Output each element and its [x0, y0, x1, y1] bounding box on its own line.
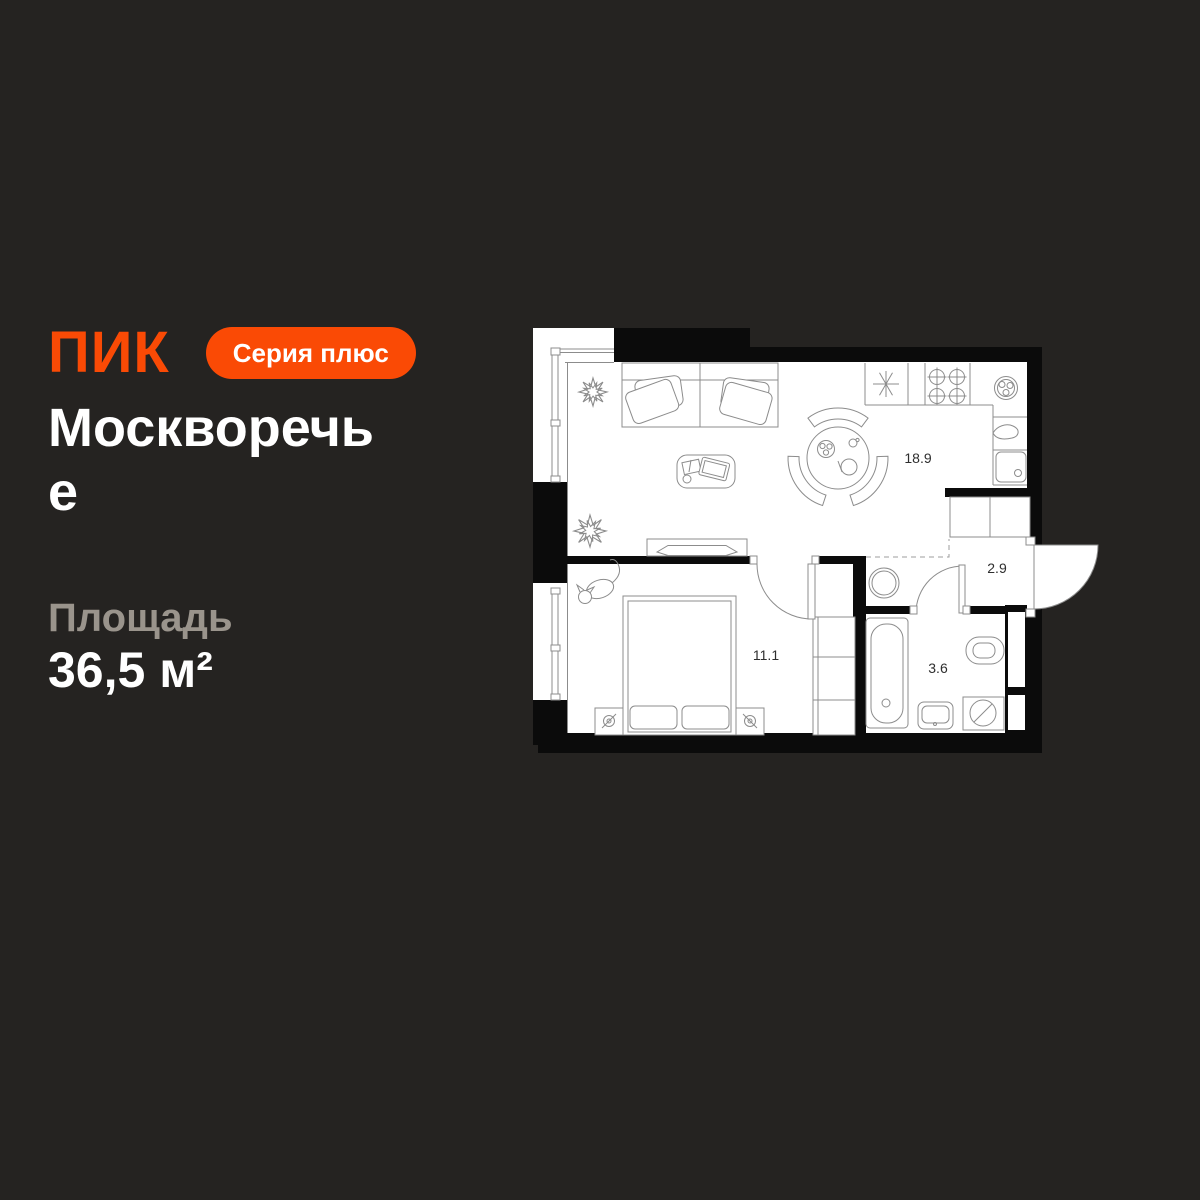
- room-label-bedroom: 11.1: [753, 647, 779, 663]
- page-root: { "background": "#252321", "brand": { "l…: [0, 0, 1200, 1200]
- washing-column: [869, 568, 899, 598]
- project-title: Москворечье: [48, 396, 404, 524]
- series-plus-badge: Серия плюс: [206, 327, 416, 379]
- area-block: Площадь 36,5 м²: [48, 598, 233, 698]
- hall-closet: [950, 497, 1030, 537]
- nightstand: [595, 708, 623, 735]
- vent-shaft: [1008, 612, 1025, 687]
- entrance-door: [1026, 537, 1098, 617]
- room-label-kitchen-living: 18.9: [904, 450, 931, 466]
- pik-logo: ПИК: [48, 324, 170, 382]
- room-label-hallway: 2.9: [987, 560, 1007, 576]
- wardrobe: [813, 617, 855, 735]
- sofa: [622, 363, 778, 427]
- nightstand: [736, 708, 764, 735]
- floor-plan: 18.9 2.9 11.1 3.6: [533, 327, 1103, 753]
- area-label: Площадь: [48, 598, 233, 638]
- area-value: 36,5 м²: [48, 642, 233, 698]
- washing-machine: [963, 697, 1004, 730]
- bathtub: [866, 618, 908, 728]
- room-label-bathroom: 3.6: [928, 660, 948, 676]
- bed: [623, 596, 736, 735]
- coffee-table: [677, 455, 735, 488]
- brand-row: ПИК Серия плюс: [48, 324, 416, 382]
- vent-shaft: [1008, 695, 1025, 730]
- tv-stand: [647, 539, 747, 556]
- toilet: [966, 637, 1004, 664]
- bathroom-sink: [918, 702, 953, 729]
